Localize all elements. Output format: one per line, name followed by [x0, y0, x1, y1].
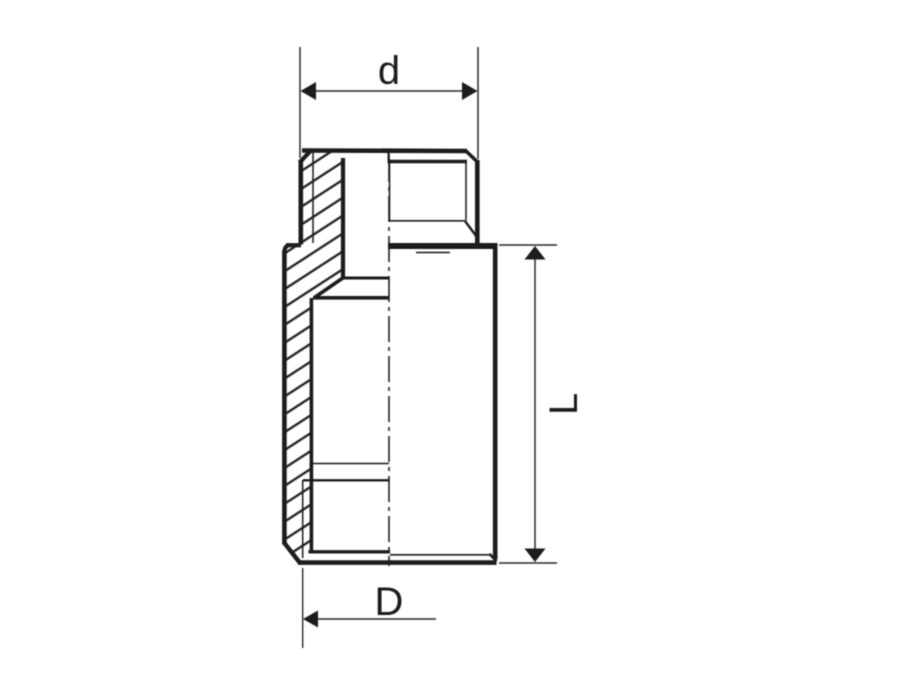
svg-text:D: D: [375, 580, 404, 624]
svg-text:d: d: [378, 49, 400, 93]
svg-text:L: L: [542, 393, 586, 415]
